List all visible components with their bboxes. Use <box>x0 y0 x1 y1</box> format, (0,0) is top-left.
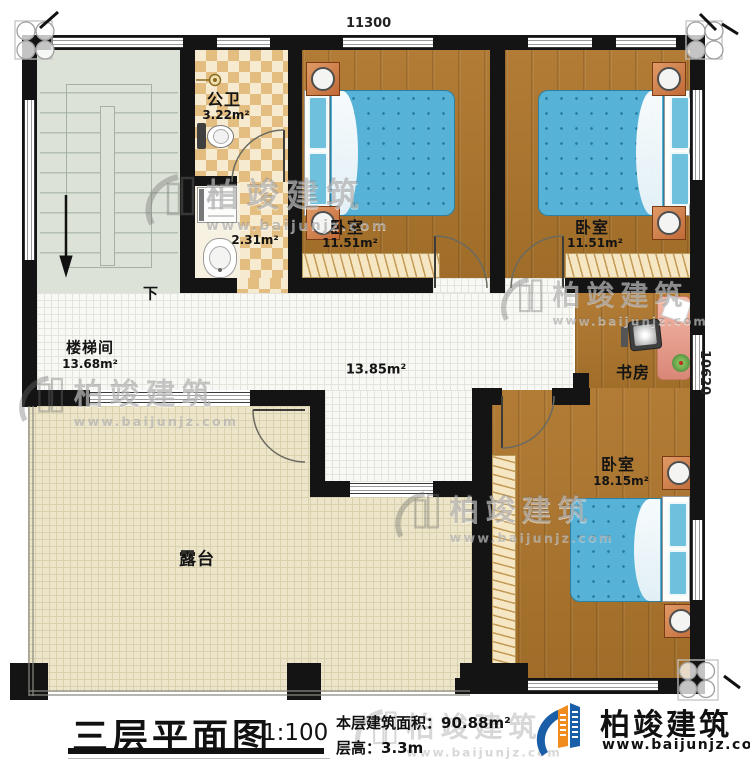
stair-arrow <box>60 195 72 276</box>
bathroom-area: 3.22m² <box>202 108 249 122</box>
dimension-top: 11300 <box>346 16 391 31</box>
bedroom2-name: 卧室 <box>575 214 609 238</box>
floor-area-line: 本层建筑面积：90.88m² <box>336 712 511 733</box>
floor-area-label: 本层建筑面积： <box>336 714 441 732</box>
door-arcs <box>232 130 563 462</box>
hall-area: 13.85m² <box>346 363 406 378</box>
stairwell-name: 楼梯间 <box>66 337 114 358</box>
stairwell-area: 13.68m² <box>62 357 118 371</box>
title-rule-thin <box>68 758 330 759</box>
plan-scale: 1:100 <box>262 720 328 746</box>
company-logo-url: www.baijunjz.com <box>602 737 750 753</box>
dimension-ticks <box>40 12 740 688</box>
study-name: 书房 <box>616 359 650 383</box>
floorplan-page: { "dimensions": { "top": "11300", "right… <box>0 0 750 766</box>
terrace-railing <box>29 406 470 696</box>
floor-area-value: 90.88m² <box>441 714 511 732</box>
floor-height-label: 层高： <box>336 739 381 757</box>
towel-hook <box>196 75 221 86</box>
terrace-name: 露台 <box>179 545 215 570</box>
plan-deco-layer <box>0 0 750 766</box>
company-logo-icon <box>530 698 594 762</box>
bedroom3-name: 卧室 <box>601 451 635 475</box>
title-rule-thick <box>68 748 324 754</box>
dimension-right: 10620 <box>697 350 712 395</box>
floor-height-line: 层高：3.3m <box>336 737 423 758</box>
bedroom1-area: 11.51m² <box>322 236 378 250</box>
door-leaves <box>253 130 563 448</box>
bathroom-area2: 2.31m² <box>231 233 278 247</box>
bathroom-name: 公卫 <box>207 86 241 110</box>
bedroom2-area: 11.51m² <box>567 236 623 250</box>
bedroom1-name: 卧室 <box>330 214 364 238</box>
stair-down-label: 下 <box>143 283 159 304</box>
floor-height-value: 3.3m <box>381 739 423 757</box>
bedroom3-area: 18.15m² <box>593 474 649 488</box>
